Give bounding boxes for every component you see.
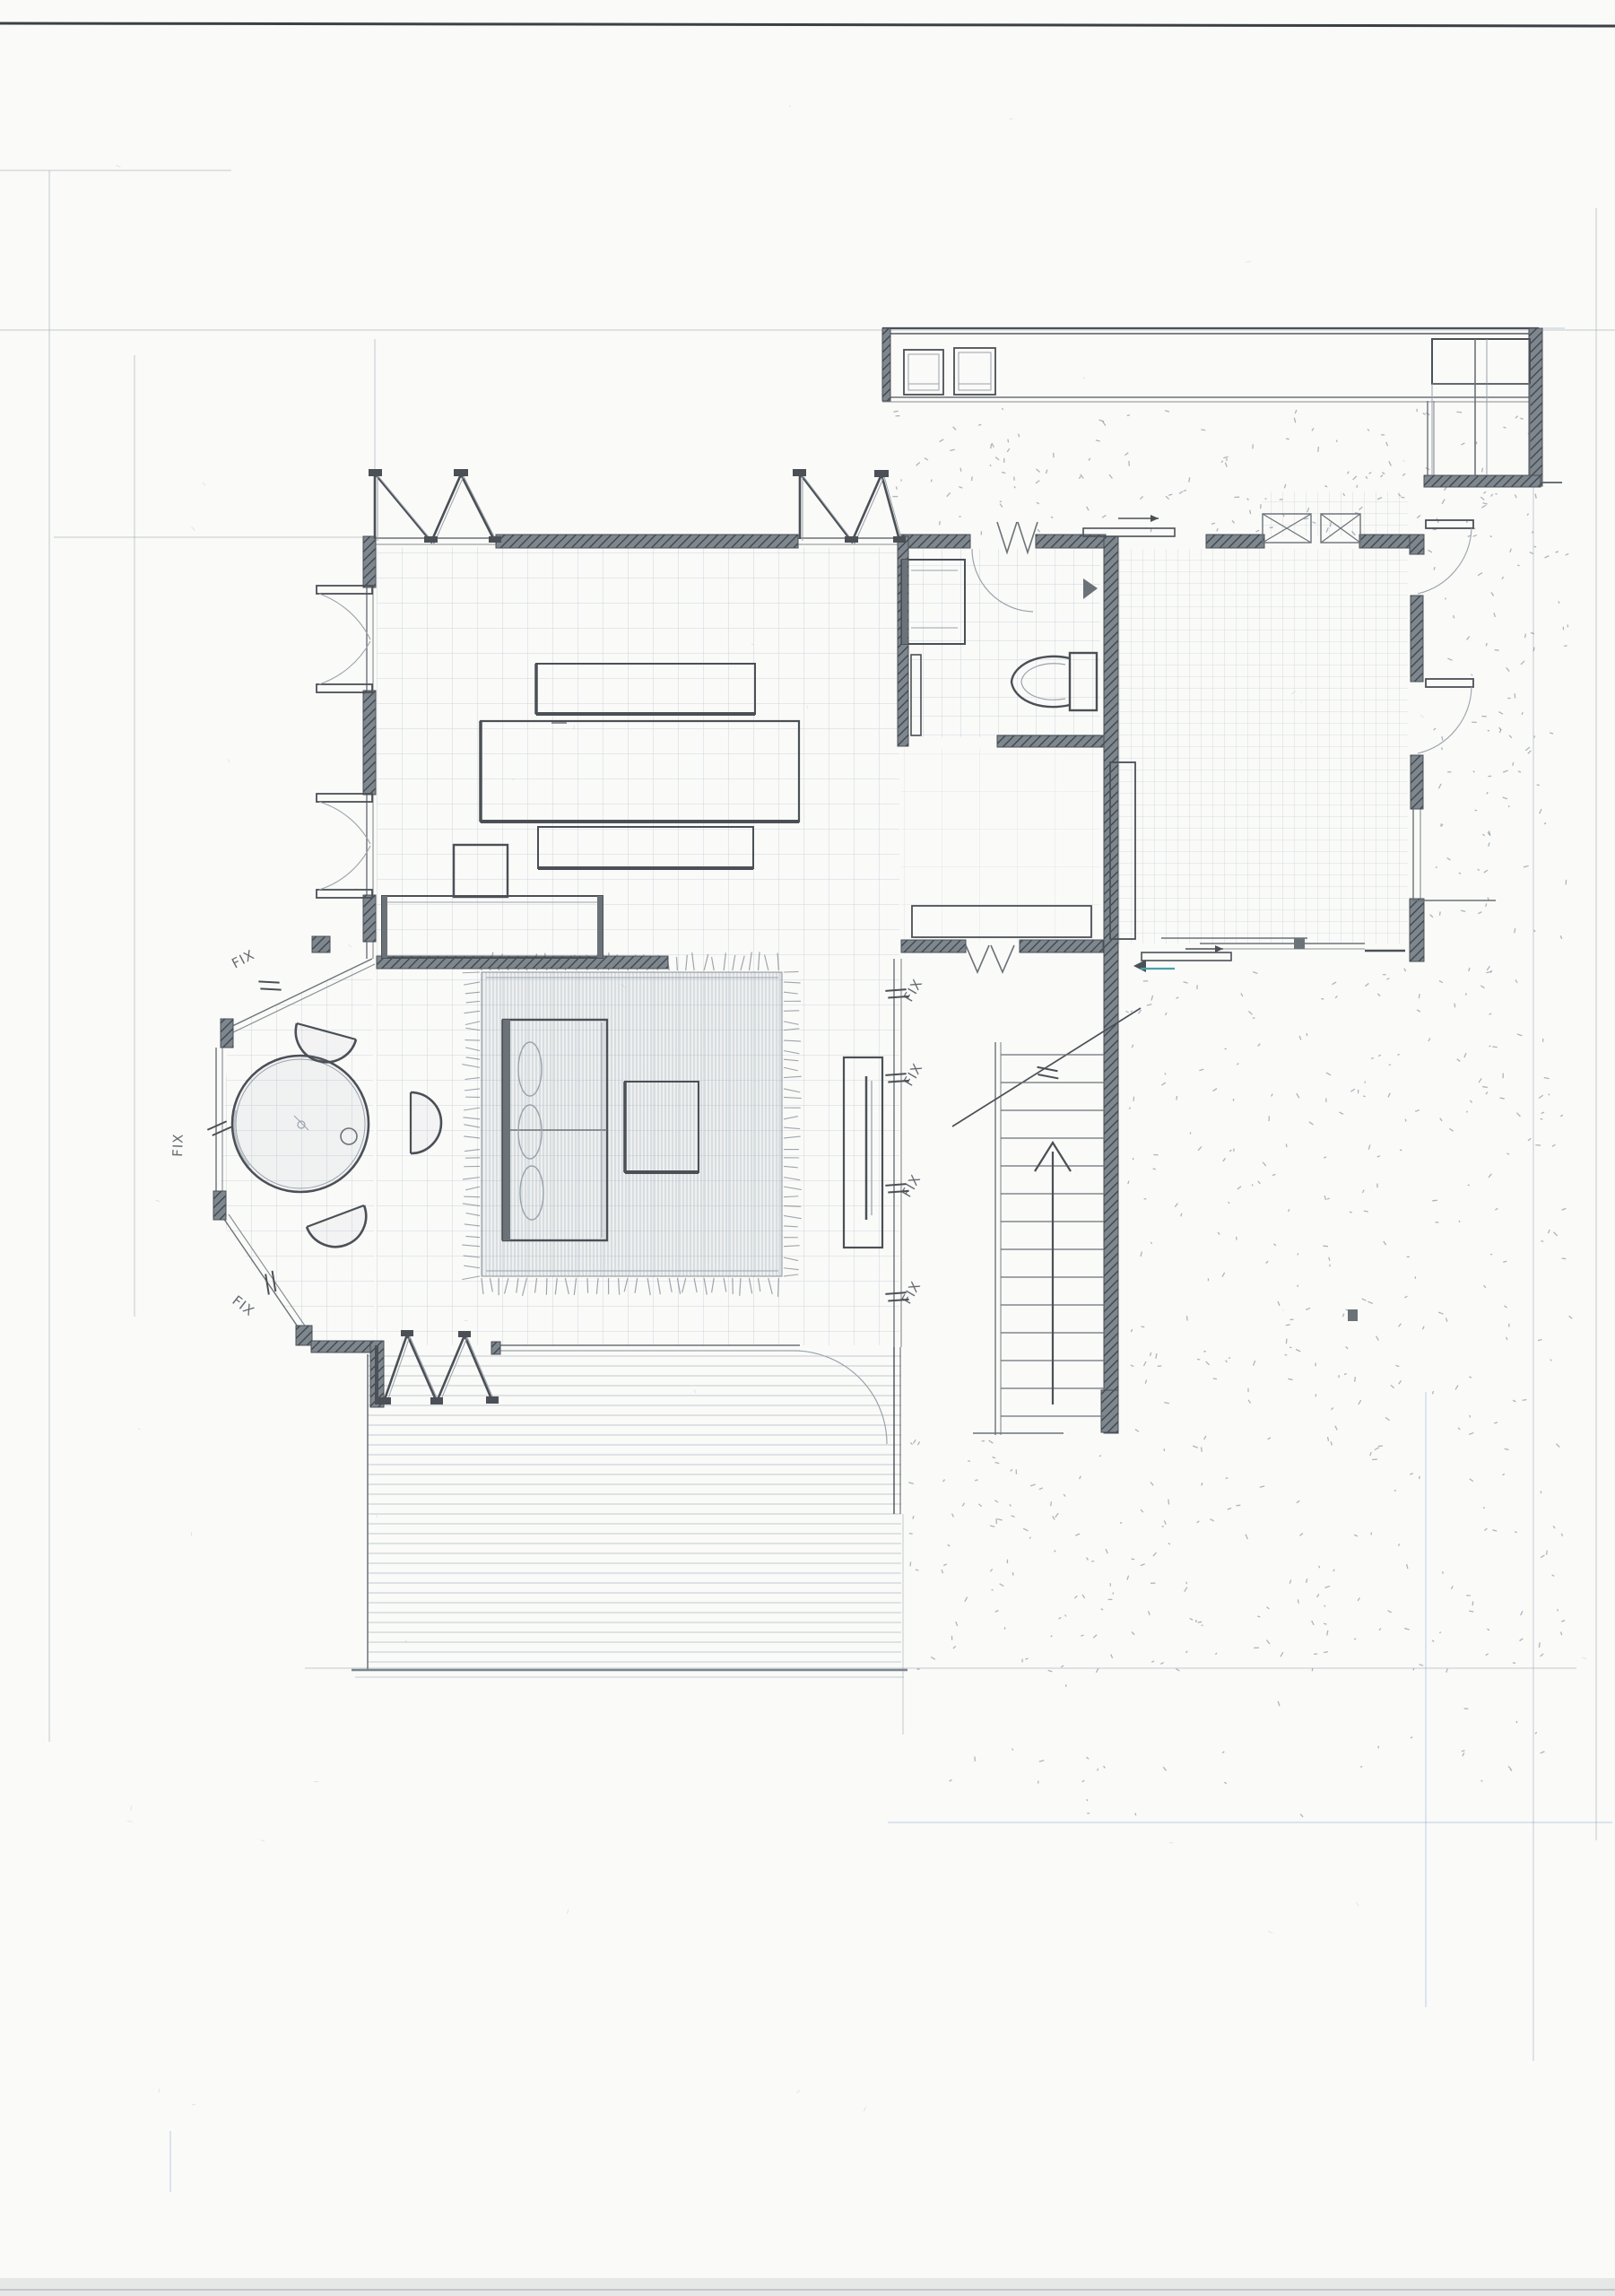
wall-band-left-cap (882, 328, 890, 401)
stipple-dot (1223, 1158, 1226, 1161)
stipple-dot (1309, 1122, 1314, 1125)
wall-wc-south (997, 735, 1112, 747)
stipple-dot (1166, 1013, 1167, 1015)
stipple-dot (1250, 510, 1251, 514)
stipple-dot (1185, 1651, 1187, 1653)
stipple-dot (1222, 1273, 1225, 1277)
stipple-dot (1567, 624, 1568, 627)
stipple-dot (1494, 1422, 1498, 1423)
stipple-dot (1324, 1623, 1326, 1624)
stipple-dot (1280, 500, 1283, 500)
stipple-dot (1449, 1128, 1453, 1131)
stipple-dot (1455, 1386, 1458, 1390)
stipple-dot (975, 1480, 977, 1481)
stipple-dot (1486, 1092, 1488, 1095)
stipple-dot (1508, 1766, 1511, 1769)
stipple-dot (1263, 1162, 1266, 1166)
stipple-dot (1082, 1780, 1085, 1782)
stipple-dot (1484, 1285, 1486, 1288)
stipple-dot (1486, 643, 1487, 646)
stipple-dot (1517, 565, 1519, 566)
stipple-dot (1147, 1004, 1151, 1006)
stipple-dot (1502, 577, 1504, 579)
stipple-dot (1541, 1118, 1543, 1119)
stipple-dot (1520, 1639, 1524, 1641)
stipple-dot (1428, 550, 1432, 552)
stipple-dot (1226, 1361, 1228, 1362)
stipple-dot (1365, 983, 1368, 986)
stipple-dot (1473, 535, 1477, 537)
stipple-dot (1061, 1665, 1064, 1667)
stipple-dot (948, 1544, 950, 1546)
stipple-dot (1538, 1340, 1541, 1341)
stipple-dot (1265, 499, 1267, 500)
stipple-dot (1103, 422, 1106, 426)
stipple-dot (1294, 418, 1295, 423)
stipple-dot (1184, 982, 1188, 983)
stipple-dot (1489, 831, 1489, 836)
stipple-dot (1492, 1047, 1497, 1048)
stipple-dot (1517, 1034, 1522, 1036)
stipple-dot (1410, 1474, 1413, 1474)
stipple-dot (1516, 1113, 1520, 1117)
window-cap (845, 536, 858, 543)
stipple-dot (978, 424, 981, 425)
stipple-dot (1197, 1521, 1200, 1523)
stipple-dot (1472, 1601, 1473, 1605)
stipple-dot (1541, 1555, 1544, 1558)
stipple-dot (1483, 503, 1488, 504)
stipple-dot (1145, 1380, 1146, 1384)
stipple-dot (1150, 1352, 1151, 1356)
stipple-dot (1253, 972, 1257, 974)
wall-hall-south-right (1020, 940, 1103, 952)
stipple-dot (1101, 1609, 1103, 1610)
stipple-dot (1010, 118, 1013, 119)
stipple-dot (1096, 1668, 1098, 1673)
stipple-dot (1362, 1299, 1367, 1300)
stipple-dot (1272, 1174, 1276, 1175)
stipple-dot (1285, 1354, 1288, 1355)
stipple-dot (1413, 1668, 1414, 1670)
stipple-dot (1439, 1632, 1440, 1633)
stipple-dot (1522, 712, 1523, 715)
stipple-dot (1299, 1533, 1303, 1535)
stipple-dot (138, 1429, 140, 1430)
stipple-dot (1482, 834, 1484, 836)
stipple-dot (567, 1909, 569, 1914)
stipple-dot (1489, 1174, 1491, 1178)
stipple-dot (1515, 494, 1516, 498)
stipple-dot (1324, 1605, 1325, 1607)
stipple-dot (989, 1440, 994, 1443)
stipple-dot (1135, 1813, 1136, 1816)
stipple-dot (1181, 1213, 1182, 1216)
door-kitchen-west-1 (317, 586, 372, 639)
stipple-dot (1229, 1202, 1230, 1204)
stipple-dot (990, 1526, 994, 1526)
stipple-dot (1368, 1301, 1372, 1303)
stipple-dot (1202, 1483, 1203, 1485)
stipple-dot (1048, 1670, 1053, 1672)
stipple-dot (1053, 1516, 1055, 1519)
stipple-dot (908, 1483, 914, 1484)
stipple-dot (1161, 1083, 1166, 1085)
stipple-dot (1237, 1064, 1238, 1065)
stipple-dot (1075, 1534, 1080, 1535)
stipple-dot (1198, 1146, 1202, 1150)
stipple-dot (1254, 1361, 1255, 1366)
stipple-dot (1318, 447, 1319, 452)
stipple-dot (916, 463, 920, 466)
stipple-dot (1525, 634, 1526, 638)
stipple-dot (229, 759, 230, 762)
band-appliance-b (954, 348, 995, 395)
stipple-dot (940, 439, 944, 442)
stipple-dot (1487, 966, 1489, 970)
stipple-dot (1232, 520, 1235, 523)
stipple-dot (1491, 592, 1494, 596)
stipple-dot (1391, 1385, 1394, 1387)
stipple-dot (1388, 1093, 1390, 1098)
stipple-dot (1389, 461, 1391, 465)
stipple-dot (1210, 1519, 1213, 1521)
stipple-dot (1083, 377, 1085, 378)
stipple-dot (1469, 1433, 1473, 1435)
rug-fringe (546, 1278, 547, 1295)
stipple-dot (1506, 1153, 1509, 1154)
stipple-dot (1222, 1752, 1224, 1753)
stipple-dot (1324, 1196, 1326, 1200)
stipple-dot (1089, 458, 1090, 461)
stipple-dot (1312, 428, 1314, 430)
stipple-dot (1087, 1558, 1089, 1561)
stipple-dot (1165, 411, 1169, 412)
stipple-dot (1537, 785, 1540, 786)
stipple-dot (1357, 1902, 1359, 1906)
stipple-dot (1470, 1100, 1472, 1102)
stipple-dot (1229, 1150, 1231, 1152)
stipple-dot (1506, 667, 1509, 671)
stipple-dot (1378, 1055, 1381, 1057)
stipple-dot (993, 1457, 996, 1457)
stipple-dot (1065, 1614, 1066, 1616)
stipple-dot (1550, 1360, 1551, 1361)
stipple-dot (1150, 1483, 1153, 1486)
stipple-dot (1478, 912, 1481, 914)
stipple-dot (910, 1443, 912, 1445)
stipple-dot (1419, 994, 1420, 998)
stipple-dot (1248, 1012, 1252, 1015)
stipple-dot (1128, 1181, 1129, 1184)
stipple-dot (1464, 1053, 1466, 1057)
stipple-dot (1289, 1347, 1291, 1348)
line-band-connector (1428, 401, 1434, 477)
stipple-dot (1000, 1584, 1004, 1587)
deck-stipple-north (892, 408, 1533, 535)
stipple-dot (1082, 1595, 1085, 1598)
stipple-dot (990, 465, 991, 466)
stipple-dot (1368, 1144, 1369, 1149)
stipple-dot (1481, 505, 1486, 508)
stipple-dot (1530, 552, 1533, 554)
stipple-dot (1382, 473, 1385, 474)
stipple-dot (1125, 1011, 1128, 1012)
stipple-dot (1483, 491, 1486, 493)
stipple-dot (1079, 476, 1081, 479)
terrace-stipple-faredge (950, 1684, 1545, 1817)
wall-stair-bottom-block (1101, 1390, 1118, 1432)
stipple-dot (1201, 430, 1205, 430)
stipple-dot (1469, 1377, 1471, 1378)
stipple-dot (1505, 1448, 1509, 1449)
stipple-dot (1561, 1620, 1565, 1622)
stipple-dot (913, 1516, 914, 1519)
stipple-dot (1306, 1308, 1310, 1309)
stipple-dot (1478, 869, 1480, 870)
stipple-dot (1534, 546, 1537, 547)
line-band-top (882, 328, 1539, 334)
stipple-dot (1404, 1628, 1410, 1630)
stipple-dot (1447, 857, 1451, 860)
window-cap (430, 1397, 443, 1405)
stipple-dot (1520, 418, 1523, 419)
stipple-dot (1515, 928, 1515, 933)
stipple-dot (1541, 1241, 1543, 1242)
stipple-dot (1362, 1190, 1364, 1193)
line-living-south (496, 1345, 800, 1351)
stipple-dot (1503, 427, 1506, 428)
stipple-dot (796, 2090, 800, 2092)
stipple-dot (1487, 792, 1488, 794)
stipple-dot (1190, 1618, 1193, 1620)
stipple-dot (1177, 1096, 1177, 1100)
line-stair-rail (995, 1042, 1001, 1435)
stipple-dot (1102, 515, 1106, 517)
entry-gate-post (1294, 938, 1305, 949)
stipple-dot (1087, 1799, 1088, 1801)
stipple-dot (910, 1562, 911, 1567)
stipple-dot (1268, 1438, 1271, 1439)
stipple-dot (990, 1569, 992, 1571)
rug (482, 972, 782, 1276)
stipple-dot (1317, 1594, 1319, 1597)
stipple-dot (1513, 1663, 1515, 1664)
stipple-dot (959, 487, 962, 489)
stipple-dot (192, 2104, 195, 2105)
stipple-dot (1556, 1444, 1559, 1448)
stipple-dot (1286, 1339, 1287, 1344)
stipple-dot (1281, 1652, 1283, 1657)
stipple-dot (1513, 762, 1514, 766)
dining-table (232, 1056, 369, 1192)
stipple-dot (1562, 1208, 1567, 1210)
stipple-dot (1354, 1535, 1358, 1536)
stipple-dot (1521, 1611, 1523, 1615)
stipple-dot (1484, 870, 1488, 873)
stipple-dot (1111, 1655, 1113, 1658)
stipple-dot (1447, 658, 1452, 660)
wall-entry-east-mid (1411, 596, 1423, 682)
stipple-dot (1038, 529, 1040, 532)
stipple-dot (1498, 712, 1503, 715)
stipple-dot (1461, 910, 1465, 911)
stipple-dot (1246, 262, 1252, 263)
stipple-dot (940, 521, 941, 525)
stipple-dot (1131, 1329, 1132, 1332)
stipple-dot (1138, 1010, 1141, 1013)
stipple-dot (1491, 494, 1493, 497)
stipple-dot (1266, 1640, 1269, 1644)
stipple-dot (943, 1480, 945, 1483)
stipple-dot (1371, 1057, 1374, 1058)
window-cap (458, 1331, 471, 1337)
stipple-dot (1142, 1326, 1145, 1327)
stipple-dot (1503, 1474, 1505, 1475)
stipple-dot (1515, 416, 1518, 419)
stipple-dot (1297, 1093, 1299, 1098)
stipple-dot (1332, 1408, 1333, 1410)
stipple-dot (953, 1647, 956, 1649)
stipple-dot (1106, 1549, 1107, 1553)
stipple-dot (1215, 1653, 1216, 1655)
wall-kitchen-west-a (363, 536, 376, 587)
stipple-dot (1398, 1544, 1399, 1545)
stipple-dot (1451, 1587, 1453, 1589)
stipple-dot (1037, 502, 1039, 504)
fix-window-label: FIX (230, 1292, 258, 1319)
stipple-dot (1168, 1543, 1170, 1544)
stipple-dot (1204, 1436, 1206, 1439)
stipple-dot (1492, 1530, 1497, 1531)
stipple-dot (1099, 1456, 1101, 1457)
stipple-dot (1490, 535, 1492, 536)
stipple-dot (1179, 491, 1183, 494)
stipple-dot (1055, 1513, 1058, 1518)
stipple-dot (1441, 824, 1444, 825)
stipple-dot (1446, 1318, 1446, 1321)
stipple-dot (1478, 573, 1482, 576)
inner-line (908, 354, 939, 390)
stipple-dot (1560, 1115, 1563, 1116)
stipple-dot (1440, 1118, 1442, 1121)
stipple-dot (1059, 1617, 1062, 1618)
stipple-dot (997, 1519, 1003, 1520)
sliding-door-entry-south (1142, 945, 1231, 961)
stipple-dot (1168, 1500, 1169, 1505)
stipple-dot (1364, 1211, 1368, 1212)
stipple-dot (1141, 1564, 1145, 1566)
stipple-dot (1325, 1587, 1330, 1588)
stipple-dot (1203, 1351, 1206, 1352)
stipple-dot (1225, 463, 1227, 467)
stipple-dot (1432, 1391, 1433, 1394)
stipple-dot (1566, 553, 1569, 554)
stipple-dot (1213, 1089, 1217, 1091)
stipple-dot (1168, 494, 1172, 495)
stipple-dot (1272, 1094, 1273, 1097)
staircase (1001, 1055, 1104, 1416)
slide-arrowhead (1150, 515, 1159, 522)
stipple-dot (1193, 1446, 1198, 1448)
stipple-dot (1165, 1073, 1166, 1074)
stipple-dot (1051, 517, 1053, 517)
stipple-dot (1386, 442, 1388, 446)
stipple-dot (1350, 1089, 1355, 1091)
stipple-dot (1012, 1516, 1015, 1518)
stipple-dot (1353, 476, 1357, 480)
stipple-dot (1355, 1377, 1356, 1382)
fix-window-label: FIX (899, 1171, 925, 1200)
stipple-dot (1268, 1931, 1272, 1933)
stipple-dot (1544, 1077, 1550, 1078)
slide-arrowhead-left (1133, 960, 1146, 972)
stipple-dot (1132, 1559, 1135, 1560)
stipple-dot (1332, 982, 1336, 985)
stipple-dot (1423, 413, 1426, 415)
rug-fringe (587, 1278, 588, 1293)
stipple-dot (1350, 1212, 1352, 1213)
door-entry-east-1 (1418, 520, 1473, 594)
stipple-dot (1482, 1087, 1488, 1088)
door-kitchen-west-4 (317, 846, 372, 898)
wall-bay-jamb-se (296, 1326, 312, 1345)
stipple-dot (156, 1200, 161, 1201)
stipple-dot (1397, 1055, 1399, 1056)
stipple-dot (1312, 1621, 1314, 1625)
stipple-dot (1286, 1325, 1290, 1326)
stipple-dot (1487, 1629, 1489, 1630)
stipple-dot (1446, 598, 1446, 600)
stipple-dot (1525, 747, 1530, 751)
stipple-dot (1518, 771, 1521, 772)
stipple-dot (1459, 1221, 1460, 1222)
wall-bay-south (311, 1341, 377, 1352)
window-cap (424, 536, 438, 543)
stipple-dot (1377, 1156, 1380, 1157)
stipple-dot (1467, 637, 1470, 640)
stipple-dot (1402, 474, 1405, 475)
stipple-dot (931, 479, 932, 482)
stipple-dot (1434, 728, 1436, 730)
wall-entry-east-post-top (1410, 535, 1424, 554)
wall-hall-south-left (901, 940, 966, 952)
stipple-dot (1486, 903, 1487, 907)
stipple-dot (1458, 1428, 1460, 1430)
stipple-dot (1246, 1535, 1247, 1539)
stipple-dot (1404, 1296, 1407, 1298)
stipple-dot (1489, 1013, 1492, 1015)
stipple-dot (1127, 1576, 1129, 1580)
stipple-dot (942, 1570, 943, 1573)
stipple-dot (1430, 915, 1433, 918)
stipple-dot (1046, 470, 1046, 474)
stipple-dot (1260, 1486, 1264, 1487)
stipple-dot (1304, 518, 1308, 519)
stipple-dot (1539, 1642, 1540, 1648)
stipple-dot (1461, 443, 1464, 445)
stipple-dot (1176, 1669, 1179, 1671)
stipple-dot (1158, 1366, 1161, 1367)
stipple-dot (1481, 468, 1482, 473)
stipple-dot (1471, 674, 1472, 675)
window-cap (401, 1330, 413, 1336)
rug-fringe (778, 1278, 779, 1297)
window-cap (486, 1396, 499, 1404)
stipple-dot (1012, 1749, 1013, 1751)
terrace-stipple-below-stairs (908, 1439, 1122, 1673)
band-cabinet-east (1432, 339, 1530, 384)
